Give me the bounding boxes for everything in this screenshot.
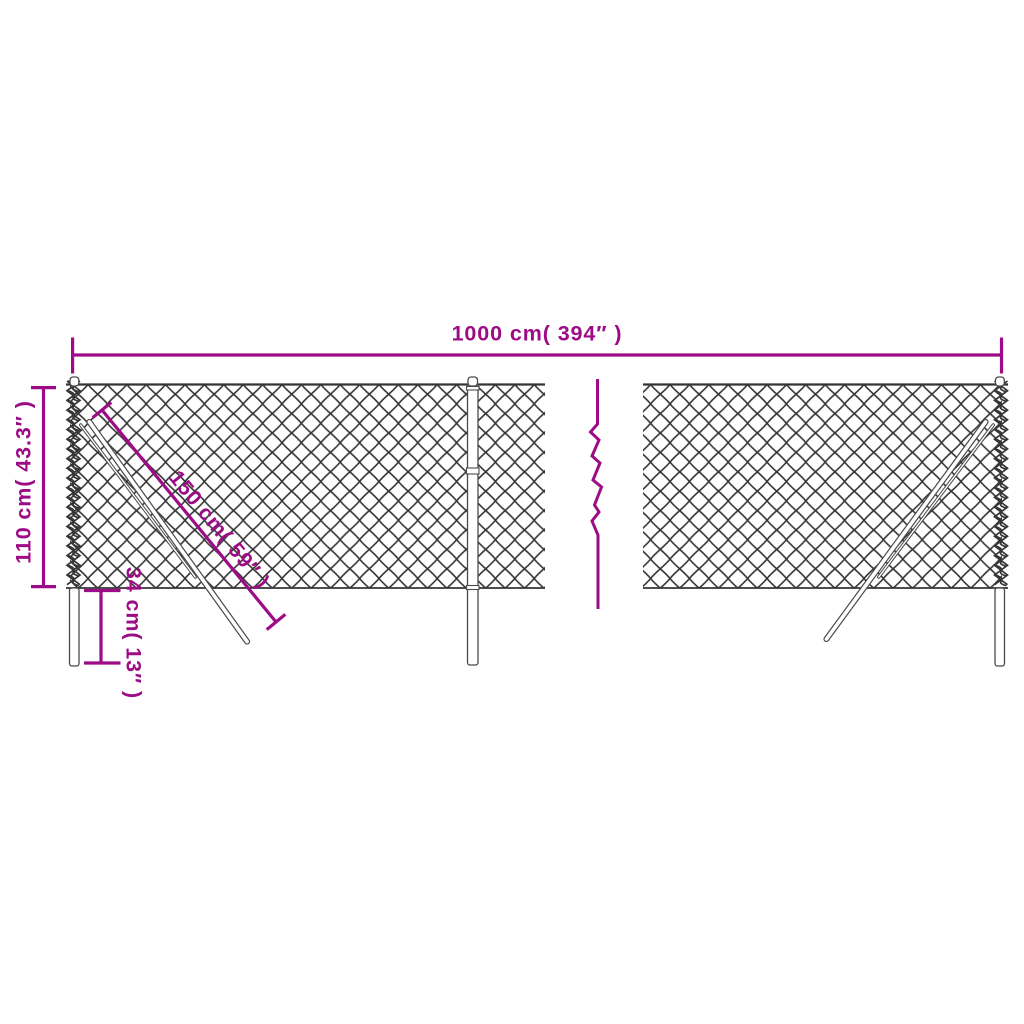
svg-text:110 cm( 43.3″ ): 110 cm( 43.3″ ) (12, 400, 36, 564)
svg-text:34 cm( 13″ ): 34 cm( 13″ ) (122, 567, 146, 699)
svg-text:1000 cm( 394″ ): 1000 cm( 394″ ) (452, 322, 623, 346)
